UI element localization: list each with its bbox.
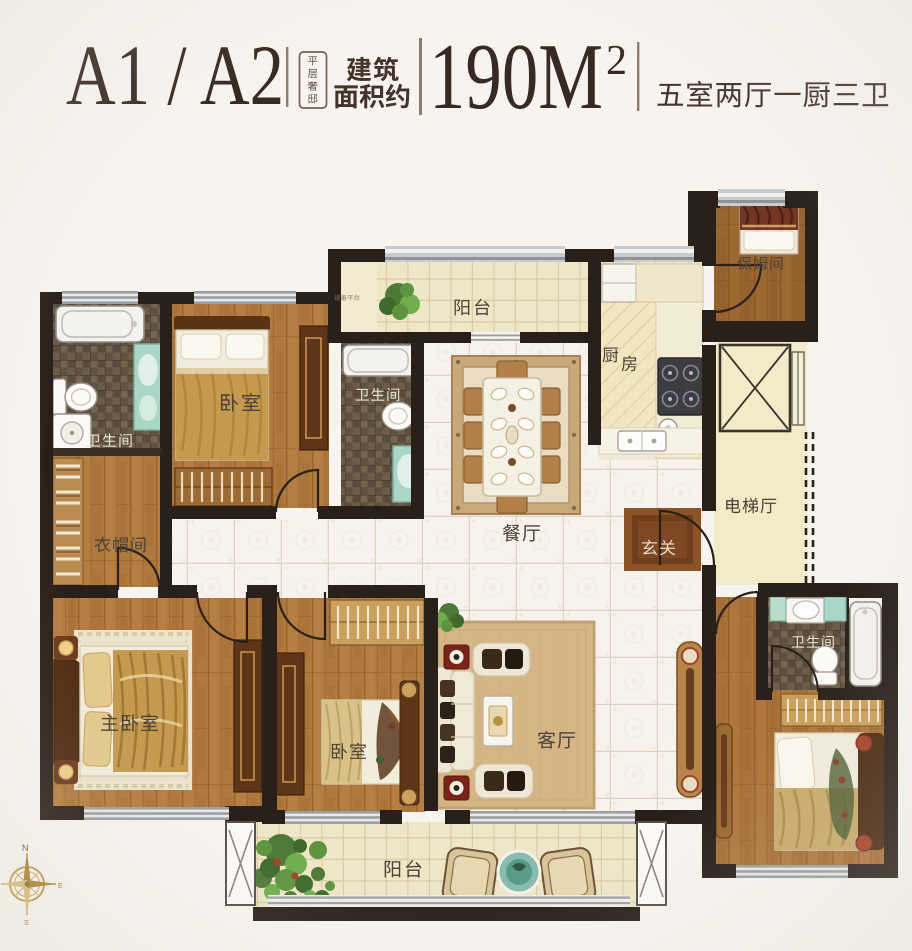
- svg-text:190M: 190M: [429, 25, 603, 129]
- svg-text:S: S: [24, 920, 29, 927]
- svg-text:N: N: [22, 843, 29, 853]
- svg-text:E: E: [58, 883, 63, 890]
- svg-text:2: 2: [606, 38, 627, 84]
- svg-text:A1 / A2: A1 / A2: [66, 27, 284, 123]
